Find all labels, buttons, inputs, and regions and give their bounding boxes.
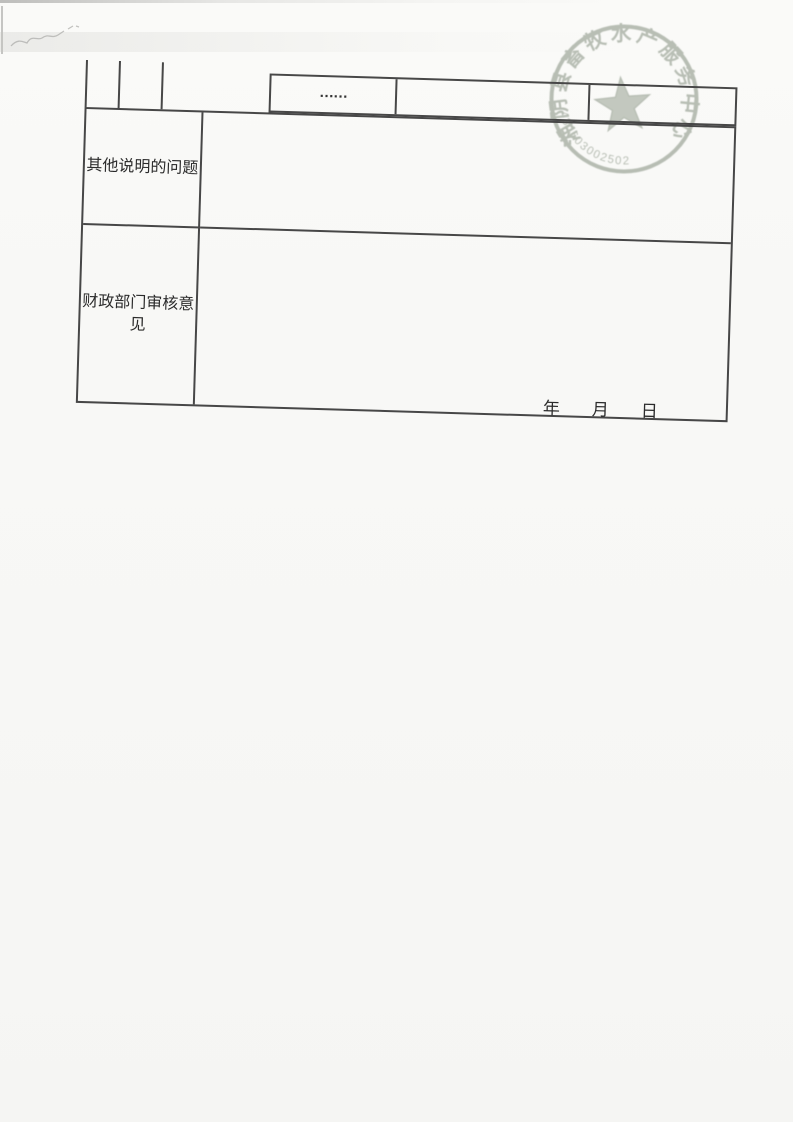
other-notes-content-cell [200, 113, 734, 245]
pencil-scribble [8, 20, 88, 56]
review-table: 其他说明的问题 财政部门审核意见 年月日 [76, 107, 736, 422]
empty-cell [589, 85, 735, 124]
other-notes-label-cell: 其他说明的问题 [83, 109, 203, 228]
scanned-document-page: 湘阴县畜牧水产服务中心 430603002502 …… 其他说明的问题 财政部门… [0, 0, 793, 1122]
date-year-label: 年 [543, 394, 561, 419]
date-line: 年月日 [543, 394, 659, 422]
continuation-column-stub [161, 62, 164, 109]
finance-review-content-cell: 年月日 [195, 228, 731, 420]
finance-review-label-cell: 财政部门审核意见 [78, 225, 200, 404]
scan-top-edge-shadow [0, 0, 793, 3]
form-table: …… 其他说明的问题 财政部门审核意见 年月日 [76, 60, 738, 425]
other-notes-label: 其他说明的问题 [86, 155, 199, 180]
finance-review-label: 财政部门审核意见 [81, 291, 195, 338]
paper-fold-shadow [0, 32, 620, 52]
continuation-column-stub [85, 60, 88, 107]
empty-cell [397, 79, 591, 120]
date-month-label: 月 [592, 395, 610, 420]
date-day-label: 日 [641, 397, 659, 422]
ellipsis-cell: …… [271, 76, 398, 115]
continuation-column-stub [118, 61, 121, 108]
ellipsis-text: …… [319, 84, 348, 106]
